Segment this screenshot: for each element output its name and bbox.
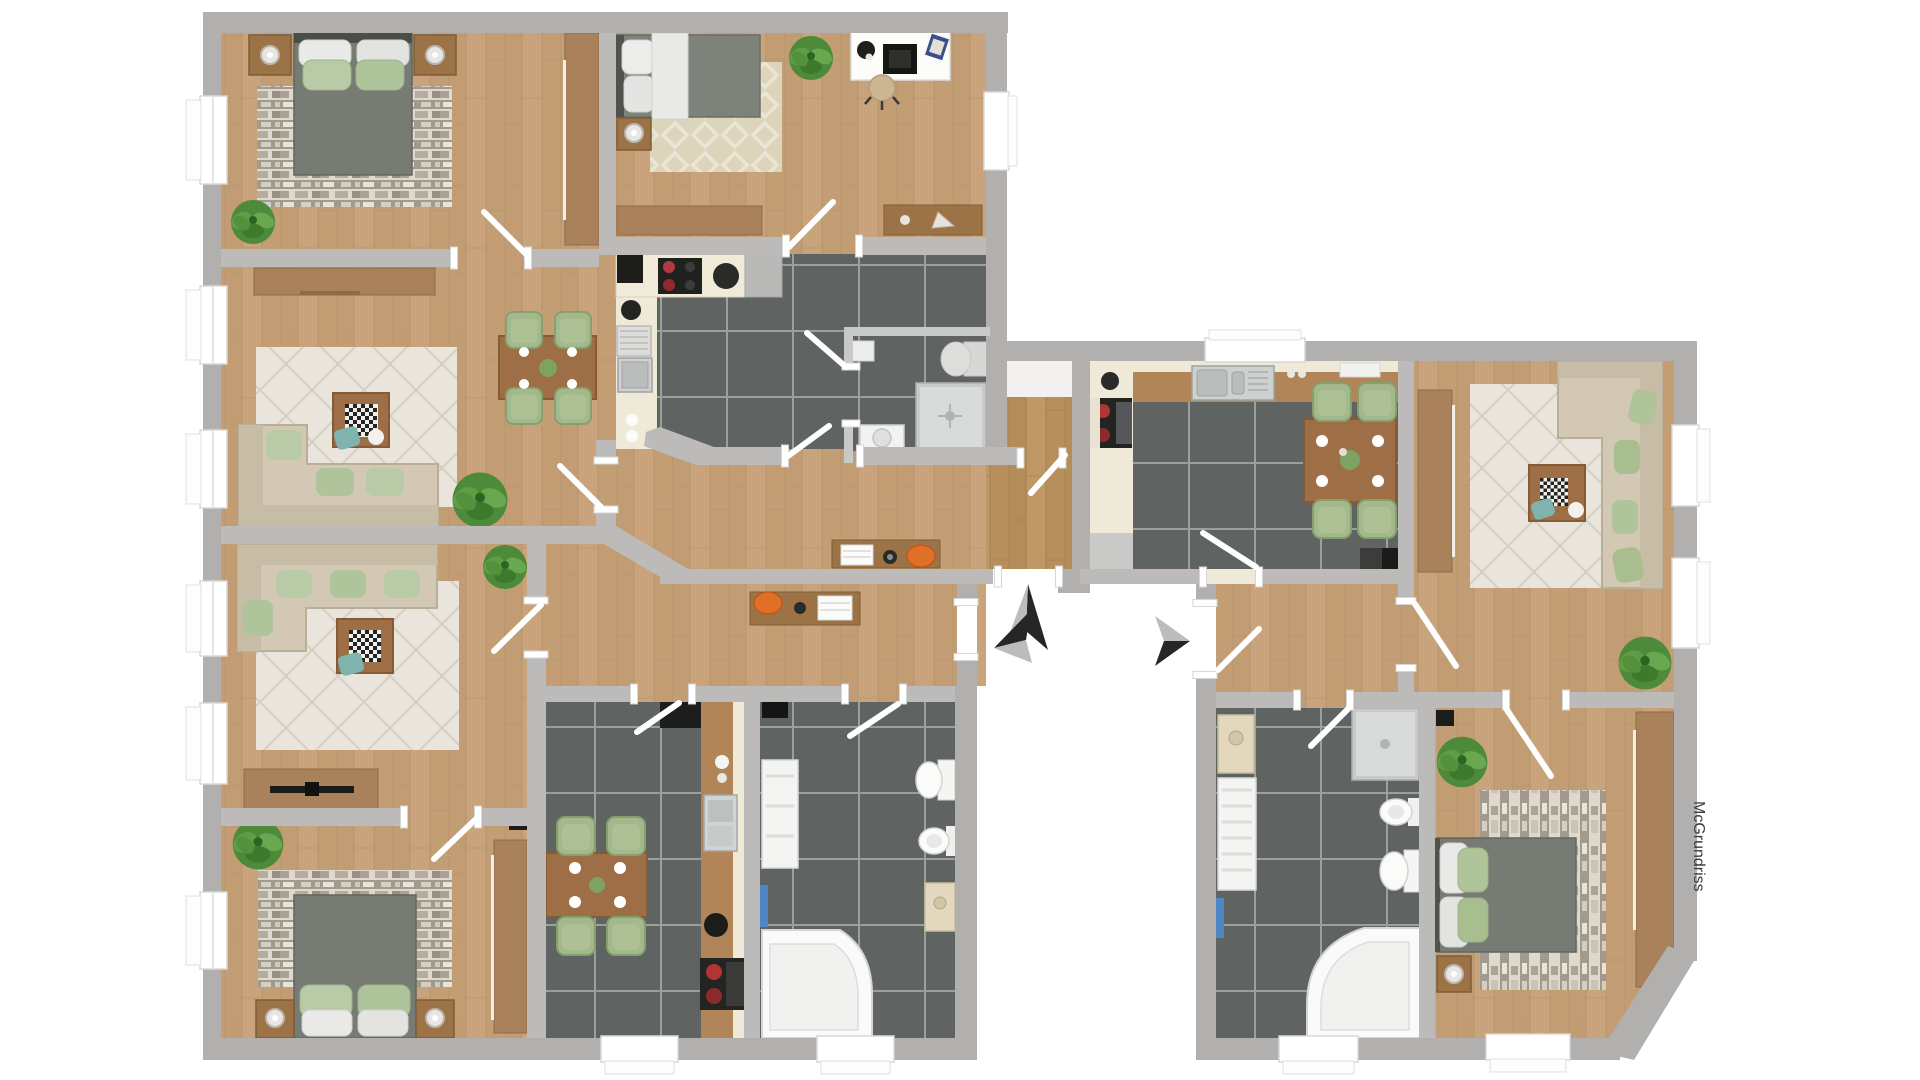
svg-text:McGrundriss: McGrundriss	[1690, 801, 1707, 892]
